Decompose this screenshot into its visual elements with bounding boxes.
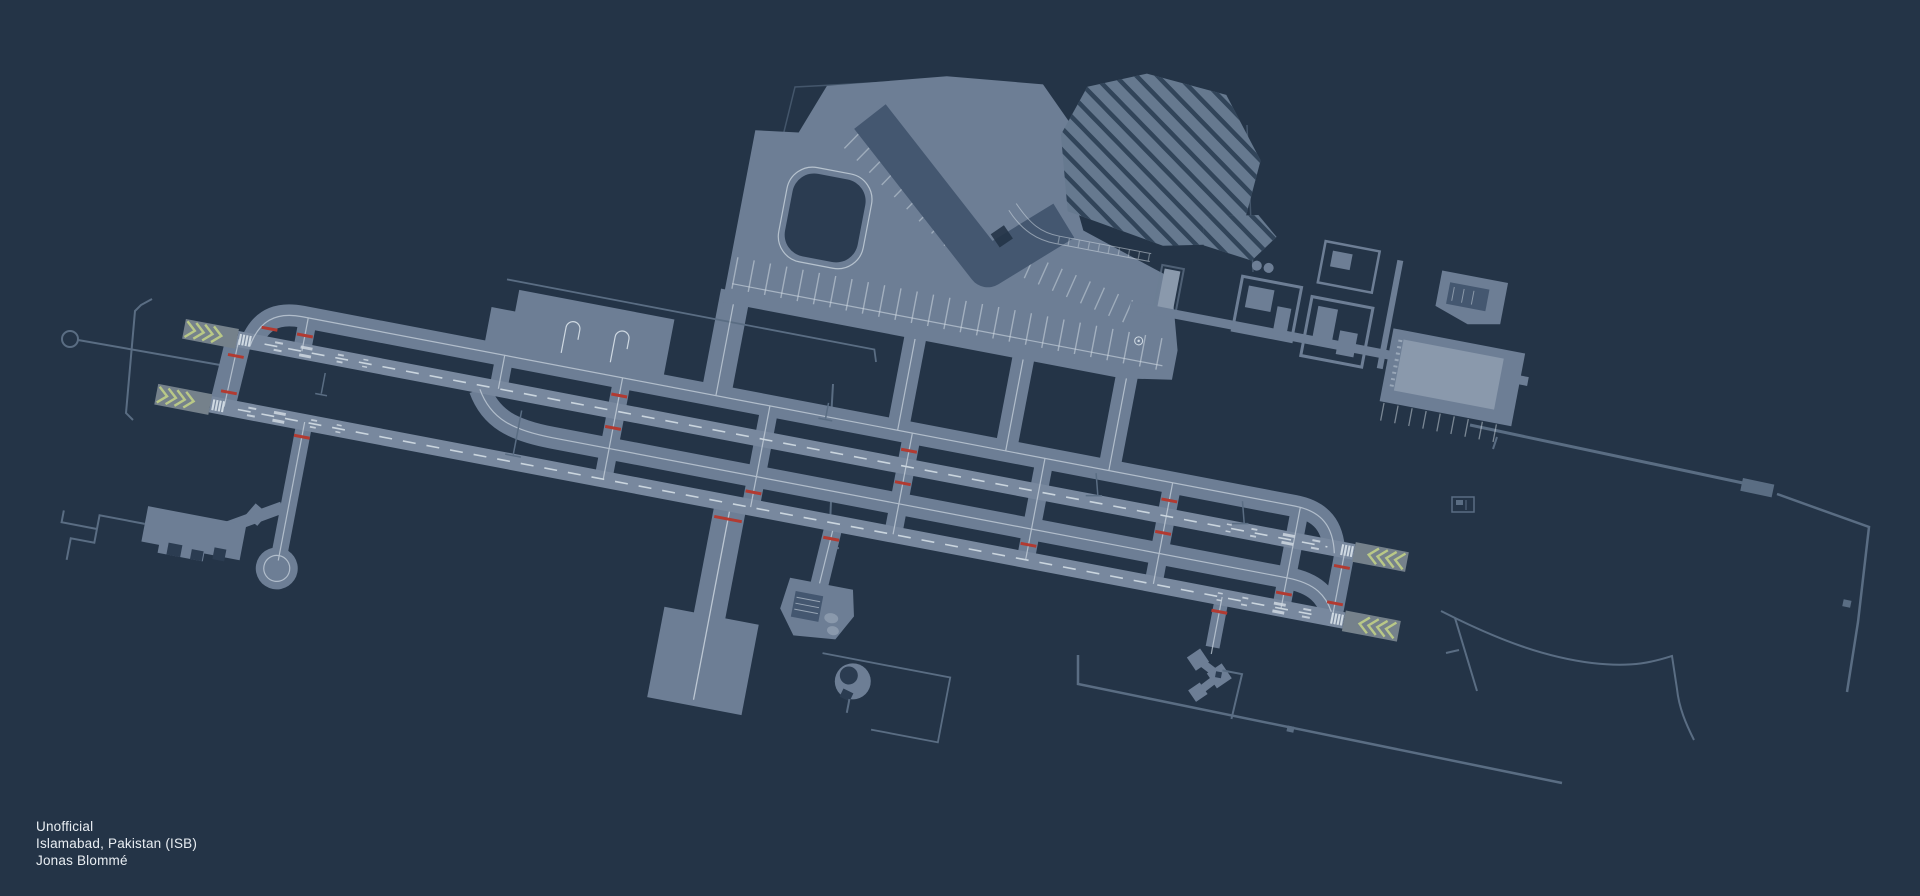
caption: Unofficial Islamabad, Pakistan (ISB) Jon… xyxy=(36,818,197,869)
caption-credit: Jonas Blommé xyxy=(36,852,197,869)
caption-location: Islamabad, Pakistan (ISB) xyxy=(36,835,197,852)
airport-map xyxy=(0,0,1920,896)
caption-status: Unofficial xyxy=(36,818,197,835)
airport-diagram-page: Unofficial Islamabad, Pakistan (ISB) Jon… xyxy=(0,0,1920,896)
